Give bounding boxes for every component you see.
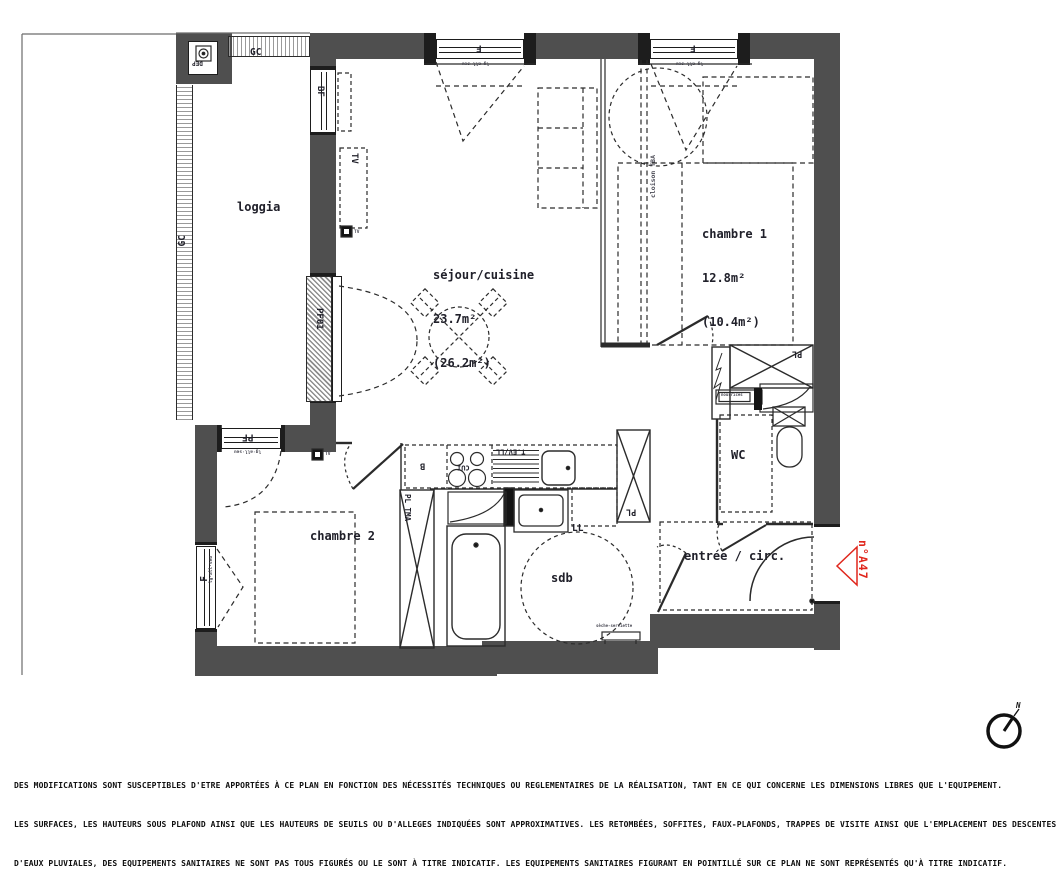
label-f-window1: F bbox=[476, 42, 482, 54]
label-pl-tma: PL TMA bbox=[403, 494, 412, 521]
label-b-counter: B bbox=[420, 460, 425, 470]
sofa-outline bbox=[538, 88, 597, 208]
label-nourrices: nourrices bbox=[721, 393, 743, 398]
sejour-area-shab: (26.2m²) bbox=[433, 356, 534, 371]
room-label-wc: WC bbox=[731, 448, 745, 463]
north-label: N bbox=[1016, 701, 1021, 710]
room-label-sdb: sdb bbox=[551, 571, 573, 586]
towel-radiator bbox=[602, 632, 640, 644]
cloison-tba-dashed bbox=[641, 60, 647, 343]
room-label-chambre1: chambre 1 12.8m² (10.4m²) bbox=[702, 198, 767, 359]
disclaimer-text: DES MODIFICATIONS SONT SUSCEPTIBLES D'ET… bbox=[14, 754, 1056, 896]
north-compass bbox=[988, 709, 1020, 747]
label-dims-window1: lg·all·seu bbox=[462, 60, 489, 65]
tv-socket bbox=[312, 226, 352, 460]
toilet bbox=[773, 407, 805, 467]
label-pl-top: PL bbox=[792, 348, 802, 358]
sdb-door bbox=[657, 545, 686, 612]
sejour-name: séjour/cuisine bbox=[433, 268, 534, 283]
wc-walls bbox=[717, 419, 813, 524]
wc-door bbox=[717, 525, 766, 551]
label-dims-pf: lg·all·seu bbox=[234, 448, 261, 453]
unit-marker-triangle bbox=[837, 547, 857, 585]
label-f-window2: F bbox=[690, 42, 696, 54]
plan-linework bbox=[0, 0, 1057, 800]
label-pf-chambre2: PF bbox=[242, 431, 253, 443]
label-dims-window2: lg·all·seu bbox=[676, 60, 703, 65]
property-line bbox=[22, 33, 310, 675]
chambre2-partition bbox=[336, 443, 403, 490]
chambre1-area-shab: (10.4m²) bbox=[702, 315, 767, 330]
wc-zone-dashed bbox=[720, 415, 772, 512]
label-gc-left: GC bbox=[177, 235, 189, 246]
room-label-sejour: séjour/cuisine 23.7m² (26.2m²) bbox=[433, 239, 534, 400]
floor-plan: GC DEP GC loggia BF TV TV PF01 F lg·all·… bbox=[0, 0, 1057, 800]
label-cloison-tba: cloison TBA bbox=[650, 155, 658, 198]
label-pf01: PF01 bbox=[313, 308, 324, 330]
label-cui: CUI bbox=[457, 463, 470, 472]
label-gc-top: GC bbox=[250, 47, 261, 59]
unit-number: n°A47 bbox=[856, 540, 870, 580]
entree-zone-dashed bbox=[660, 522, 812, 610]
partition-sejour-chambre1 bbox=[601, 59, 650, 347]
label-pl-kitchen: PL bbox=[626, 506, 636, 516]
disclaimer-line-3: D'EAUX PLUVIALES, DES EQUIPEMENTS SANITA… bbox=[14, 858, 1056, 871]
label-t-ev-ll: T.EV/LL bbox=[496, 447, 526, 456]
under-counter-cabinet bbox=[448, 492, 506, 524]
label-tv-socket-ch2: TV bbox=[325, 452, 330, 457]
washing-machine-ll bbox=[572, 488, 617, 526]
room-label-chambre2: chambre 2 bbox=[310, 529, 375, 544]
entrance-door-arc bbox=[750, 537, 814, 603]
label-tv: TV bbox=[348, 153, 359, 164]
room-label-entree: entrée / circ. bbox=[684, 549, 785, 564]
chambre1-area: 12.8m² bbox=[702, 271, 767, 286]
label-dims-f-chambre2: lg·all·seu bbox=[209, 556, 214, 583]
sejour-area: 23.7m² bbox=[433, 312, 534, 327]
label-ll: LL bbox=[572, 523, 583, 535]
disclaimer-line-2: LES SURFACES, LES HAUTEURS SOUS PLAFOND … bbox=[14, 819, 1056, 832]
chambre1-wardrobe bbox=[703, 77, 813, 163]
tv-zone bbox=[338, 73, 367, 228]
label-seche-serviette: sèche-serviette bbox=[596, 624, 632, 629]
label-dep: DEP bbox=[192, 59, 203, 66]
bathtub bbox=[447, 526, 505, 646]
kitchen-sink bbox=[542, 451, 575, 485]
label-bf: BF bbox=[314, 86, 325, 97]
label-tv-socket: TV bbox=[354, 230, 359, 235]
room-label-loggia: loggia bbox=[237, 200, 280, 215]
disclaimer-line-1: DES MODIFICATIONS SONT SUSCEPTIBLES D'ET… bbox=[14, 780, 1056, 793]
vanity-sink bbox=[514, 490, 568, 532]
chambre1-name: chambre 1 bbox=[702, 227, 767, 242]
